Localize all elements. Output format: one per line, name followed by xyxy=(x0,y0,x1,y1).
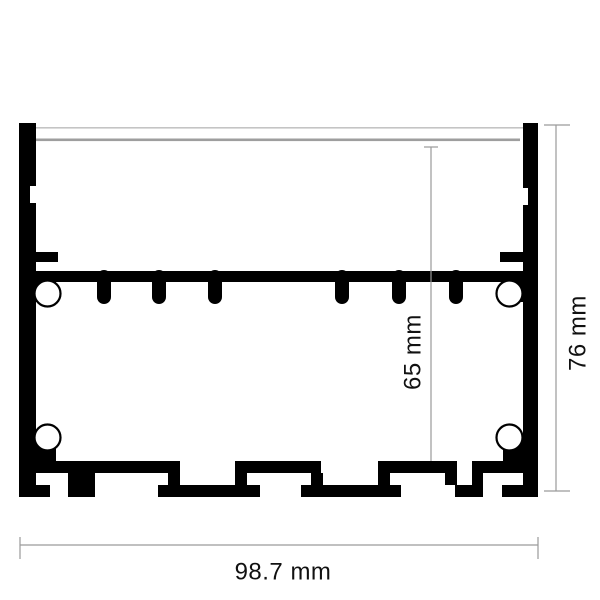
height-dimension-label: 76 mm xyxy=(564,295,591,371)
right-wall xyxy=(523,123,538,497)
width-dimension-label: 98.7 mm xyxy=(235,558,332,585)
right-slot-leg xyxy=(445,473,457,485)
width-dimension: 98.7 mm xyxy=(20,537,538,585)
cover-line-lower xyxy=(36,139,520,142)
foot-platform-1 xyxy=(158,485,260,497)
slot2-right-leg xyxy=(378,473,390,485)
screw-port-top-left xyxy=(35,281,61,307)
foot-platform-2 xyxy=(301,485,401,497)
bottom-mounting-structure xyxy=(19,461,538,497)
height-dimension: 76 mm xyxy=(544,125,591,491)
drawing-canvas: 98.7 mm 76 mm 65 mm xyxy=(0,0,600,600)
right-ledge xyxy=(472,461,523,473)
screw-ports xyxy=(35,281,523,451)
diffuser-cover-lines xyxy=(36,127,523,141)
right-support-tab xyxy=(500,252,523,262)
profile-cross-section-drawing: 98.7 mm 76 mm 65 mm xyxy=(0,0,600,600)
cover-line-upper xyxy=(36,127,523,129)
left-screw-channel-block xyxy=(68,473,95,497)
bottom-bar-a xyxy=(36,461,180,473)
inner-height-dimension-label: 65 mm xyxy=(399,314,426,390)
right-screw-channel-foot xyxy=(455,485,483,497)
cover-groove-notches xyxy=(30,186,528,205)
bottom-bar-c xyxy=(378,461,457,473)
right-groove-notch xyxy=(523,188,528,205)
inner-height-dimension: 65 mm xyxy=(399,147,438,461)
slot1-right-leg xyxy=(235,473,247,485)
left-wall xyxy=(19,123,36,497)
left-groove-notch xyxy=(30,186,36,203)
screw-port-bottom-left xyxy=(35,425,61,451)
screw-port-bottom-right xyxy=(497,425,523,451)
led-mounting-plate xyxy=(36,271,523,282)
left-support-tab xyxy=(36,252,58,262)
screw-port-top-right xyxy=(497,281,523,307)
profile-body xyxy=(19,123,538,497)
slot2-left-leg xyxy=(311,473,323,485)
left-wall-foot xyxy=(19,485,50,497)
right-wall-foot xyxy=(502,485,538,497)
slot1-left-leg xyxy=(168,473,180,485)
bottom-bar-b xyxy=(235,461,321,473)
